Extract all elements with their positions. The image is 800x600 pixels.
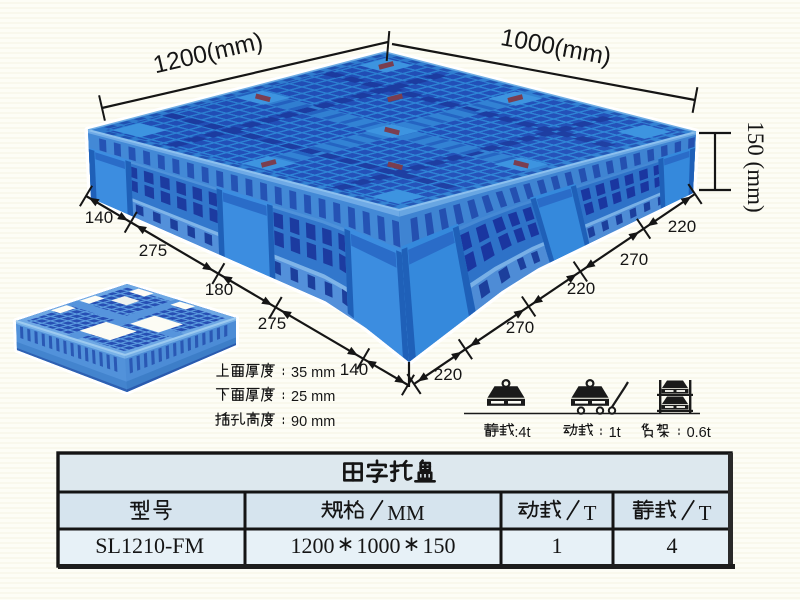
svg-text:220: 220 xyxy=(668,217,696,236)
svg-text:270: 270 xyxy=(620,250,648,269)
svg-text:220: 220 xyxy=(434,365,462,384)
svg-text:T: T xyxy=(699,501,712,525)
svg-text:180: 180 xyxy=(205,280,233,299)
svg-text:4: 4 xyxy=(667,533,678,558)
svg-text:270: 270 xyxy=(506,318,534,337)
svg-text:SL1210-FM: SL1210-FM xyxy=(95,533,204,558)
svg-text:0.6t: 0.6t xyxy=(687,425,711,441)
svg-text:25 mm: 25 mm xyxy=(291,389,335,405)
svg-text:140: 140 xyxy=(85,208,113,227)
svg-text:1000: 1000 xyxy=(357,533,401,558)
svg-text:1t: 1t xyxy=(609,425,621,441)
svg-text:220: 220 xyxy=(567,279,595,298)
svg-text:275: 275 xyxy=(258,314,286,333)
svg-text:1: 1 xyxy=(552,533,563,558)
svg-text:T: T xyxy=(584,501,597,525)
svg-text:MM: MM xyxy=(387,501,425,525)
svg-text:1200: 1200 xyxy=(291,533,335,558)
svg-text:140: 140 xyxy=(340,360,368,379)
svg-text:35 mm: 35 mm xyxy=(291,365,335,381)
svg-text:275: 275 xyxy=(139,241,167,260)
svg-text:150 (mm): 150 (mm) xyxy=(743,121,768,212)
svg-text::4t: :4t xyxy=(514,425,530,441)
svg-text:90 mm: 90 mm xyxy=(291,414,335,430)
svg-text:150: 150 xyxy=(423,533,456,558)
